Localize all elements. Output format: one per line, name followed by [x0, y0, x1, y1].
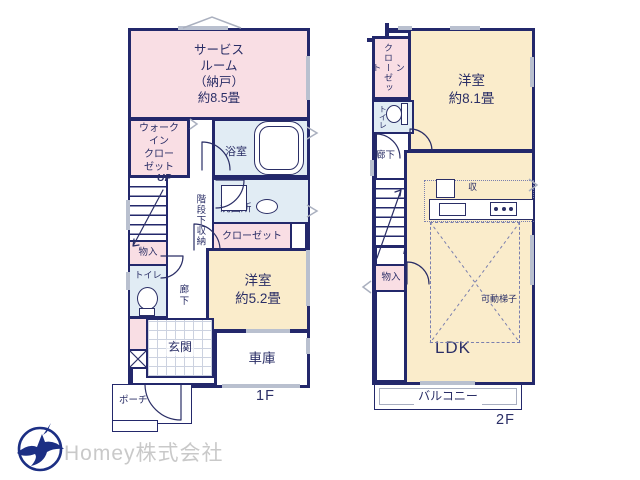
- window-mark: [126, 200, 130, 230]
- kitchen-storage-label: 収: [468, 182, 477, 194]
- room-toilet-1f-label: トイレ: [134, 270, 161, 282]
- burner-dot: [509, 207, 513, 211]
- room-closet-1f: クローゼット: [212, 222, 292, 250]
- room-wic-1f: ウォーク イン クロー ゼット: [128, 118, 190, 178]
- window-mark: [530, 57, 534, 87]
- room-bedroom-1f-label: 洋室 約5.2畳: [235, 272, 281, 307]
- window-mark: [530, 235, 534, 285]
- window-mark: [450, 26, 480, 30]
- room-bath-1f-label: 浴室: [225, 145, 247, 159]
- sink-fixture: [256, 199, 278, 214]
- room-closet-1f-label: クローゼット: [222, 230, 282, 243]
- room-entrance-1f-label: 玄関: [166, 340, 194, 356]
- stairs-up-label: UP: [157, 172, 172, 186]
- window-mark: [306, 250, 310, 306]
- room-garage-1f-label: 車庫: [249, 350, 276, 368]
- room-bedroom-2f-label: 洋室 約8.1畳: [449, 72, 495, 107]
- washing-machine-fixture: [221, 185, 247, 211]
- toilet-fixture-2f: [386, 105, 402, 123]
- room-service-1f-label: サービス ルーム （納戸） 約8.5畳: [194, 42, 244, 107]
- room-service-1f: サービス ルーム （納戸） 約8.5畳: [128, 28, 310, 120]
- room-bedroom-2f: 洋室 約8.1畳: [408, 28, 535, 152]
- room-storage-1f: 物入: [128, 240, 168, 266]
- room-storage-2f: 物入: [374, 264, 408, 292]
- window-mark: [306, 56, 310, 100]
- room-bedroom-1f: 洋室 約5.2畳: [206, 248, 310, 332]
- movable-ladder-label: 可動梯子: [480, 294, 518, 306]
- window-mark: [370, 160, 374, 176]
- porch-1f: ポーチ: [112, 384, 192, 424]
- room-storage-1f-label: 物入: [138, 247, 157, 259]
- under-stair-storage-label: 階段下収納: [193, 192, 205, 248]
- floor1-label: 1F: [256, 387, 275, 406]
- plan-marks-overlay: [0, 0, 640, 480]
- window-mark: [306, 338, 310, 354]
- entrance-storage-box: [128, 349, 148, 369]
- loft-zone-outline: [430, 222, 520, 343]
- company-logo-icon: [12, 418, 68, 474]
- floor2-label: 2F: [496, 411, 515, 430]
- hallway-2f-label: 廊下: [376, 150, 395, 162]
- window-open-mark: [363, 281, 371, 293]
- burner-dot: [494, 207, 498, 211]
- refrigerator-space: [436, 179, 455, 198]
- stairs-1f: [128, 176, 168, 250]
- porch-1f-label: ポーチ: [119, 395, 148, 407]
- burner-dot: [502, 207, 506, 211]
- bathtub-inner: [259, 126, 299, 170]
- window-mark: [398, 26, 412, 30]
- toilet-fixture-1f: [137, 287, 158, 310]
- window-mark: [126, 272, 130, 290]
- toilet-tank-2f: [401, 103, 408, 125]
- stove-fixture: [490, 202, 517, 216]
- room-storage-2f-label: 物入: [381, 272, 400, 284]
- room-wic-1f-label: ウォーク イン クロー ゼット: [139, 122, 179, 174]
- room-entrance-1f: 玄関: [146, 318, 214, 378]
- floorplan-page: { "colors": { "wall": "#23286b", "room_p…: [0, 0, 640, 480]
- window-mark: [246, 329, 290, 333]
- balcony-2f-label: バルコニー: [414, 389, 482, 405]
- stairs-2f: [374, 178, 406, 248]
- balcony-door-mark: [420, 381, 475, 385]
- porch-step: [112, 420, 158, 432]
- company-name: Homey株式会社: [64, 437, 224, 467]
- window-mark: [178, 26, 228, 30]
- room-garage-1f: 車庫: [214, 330, 310, 388]
- hallway-1f-label: 廊下: [176, 278, 188, 312]
- toilet-tank-1f: [139, 308, 155, 316]
- garage-door-mark: [222, 384, 300, 388]
- kitchen-sink-fixture: [439, 203, 466, 216]
- shoe-cabinet: [128, 317, 148, 351]
